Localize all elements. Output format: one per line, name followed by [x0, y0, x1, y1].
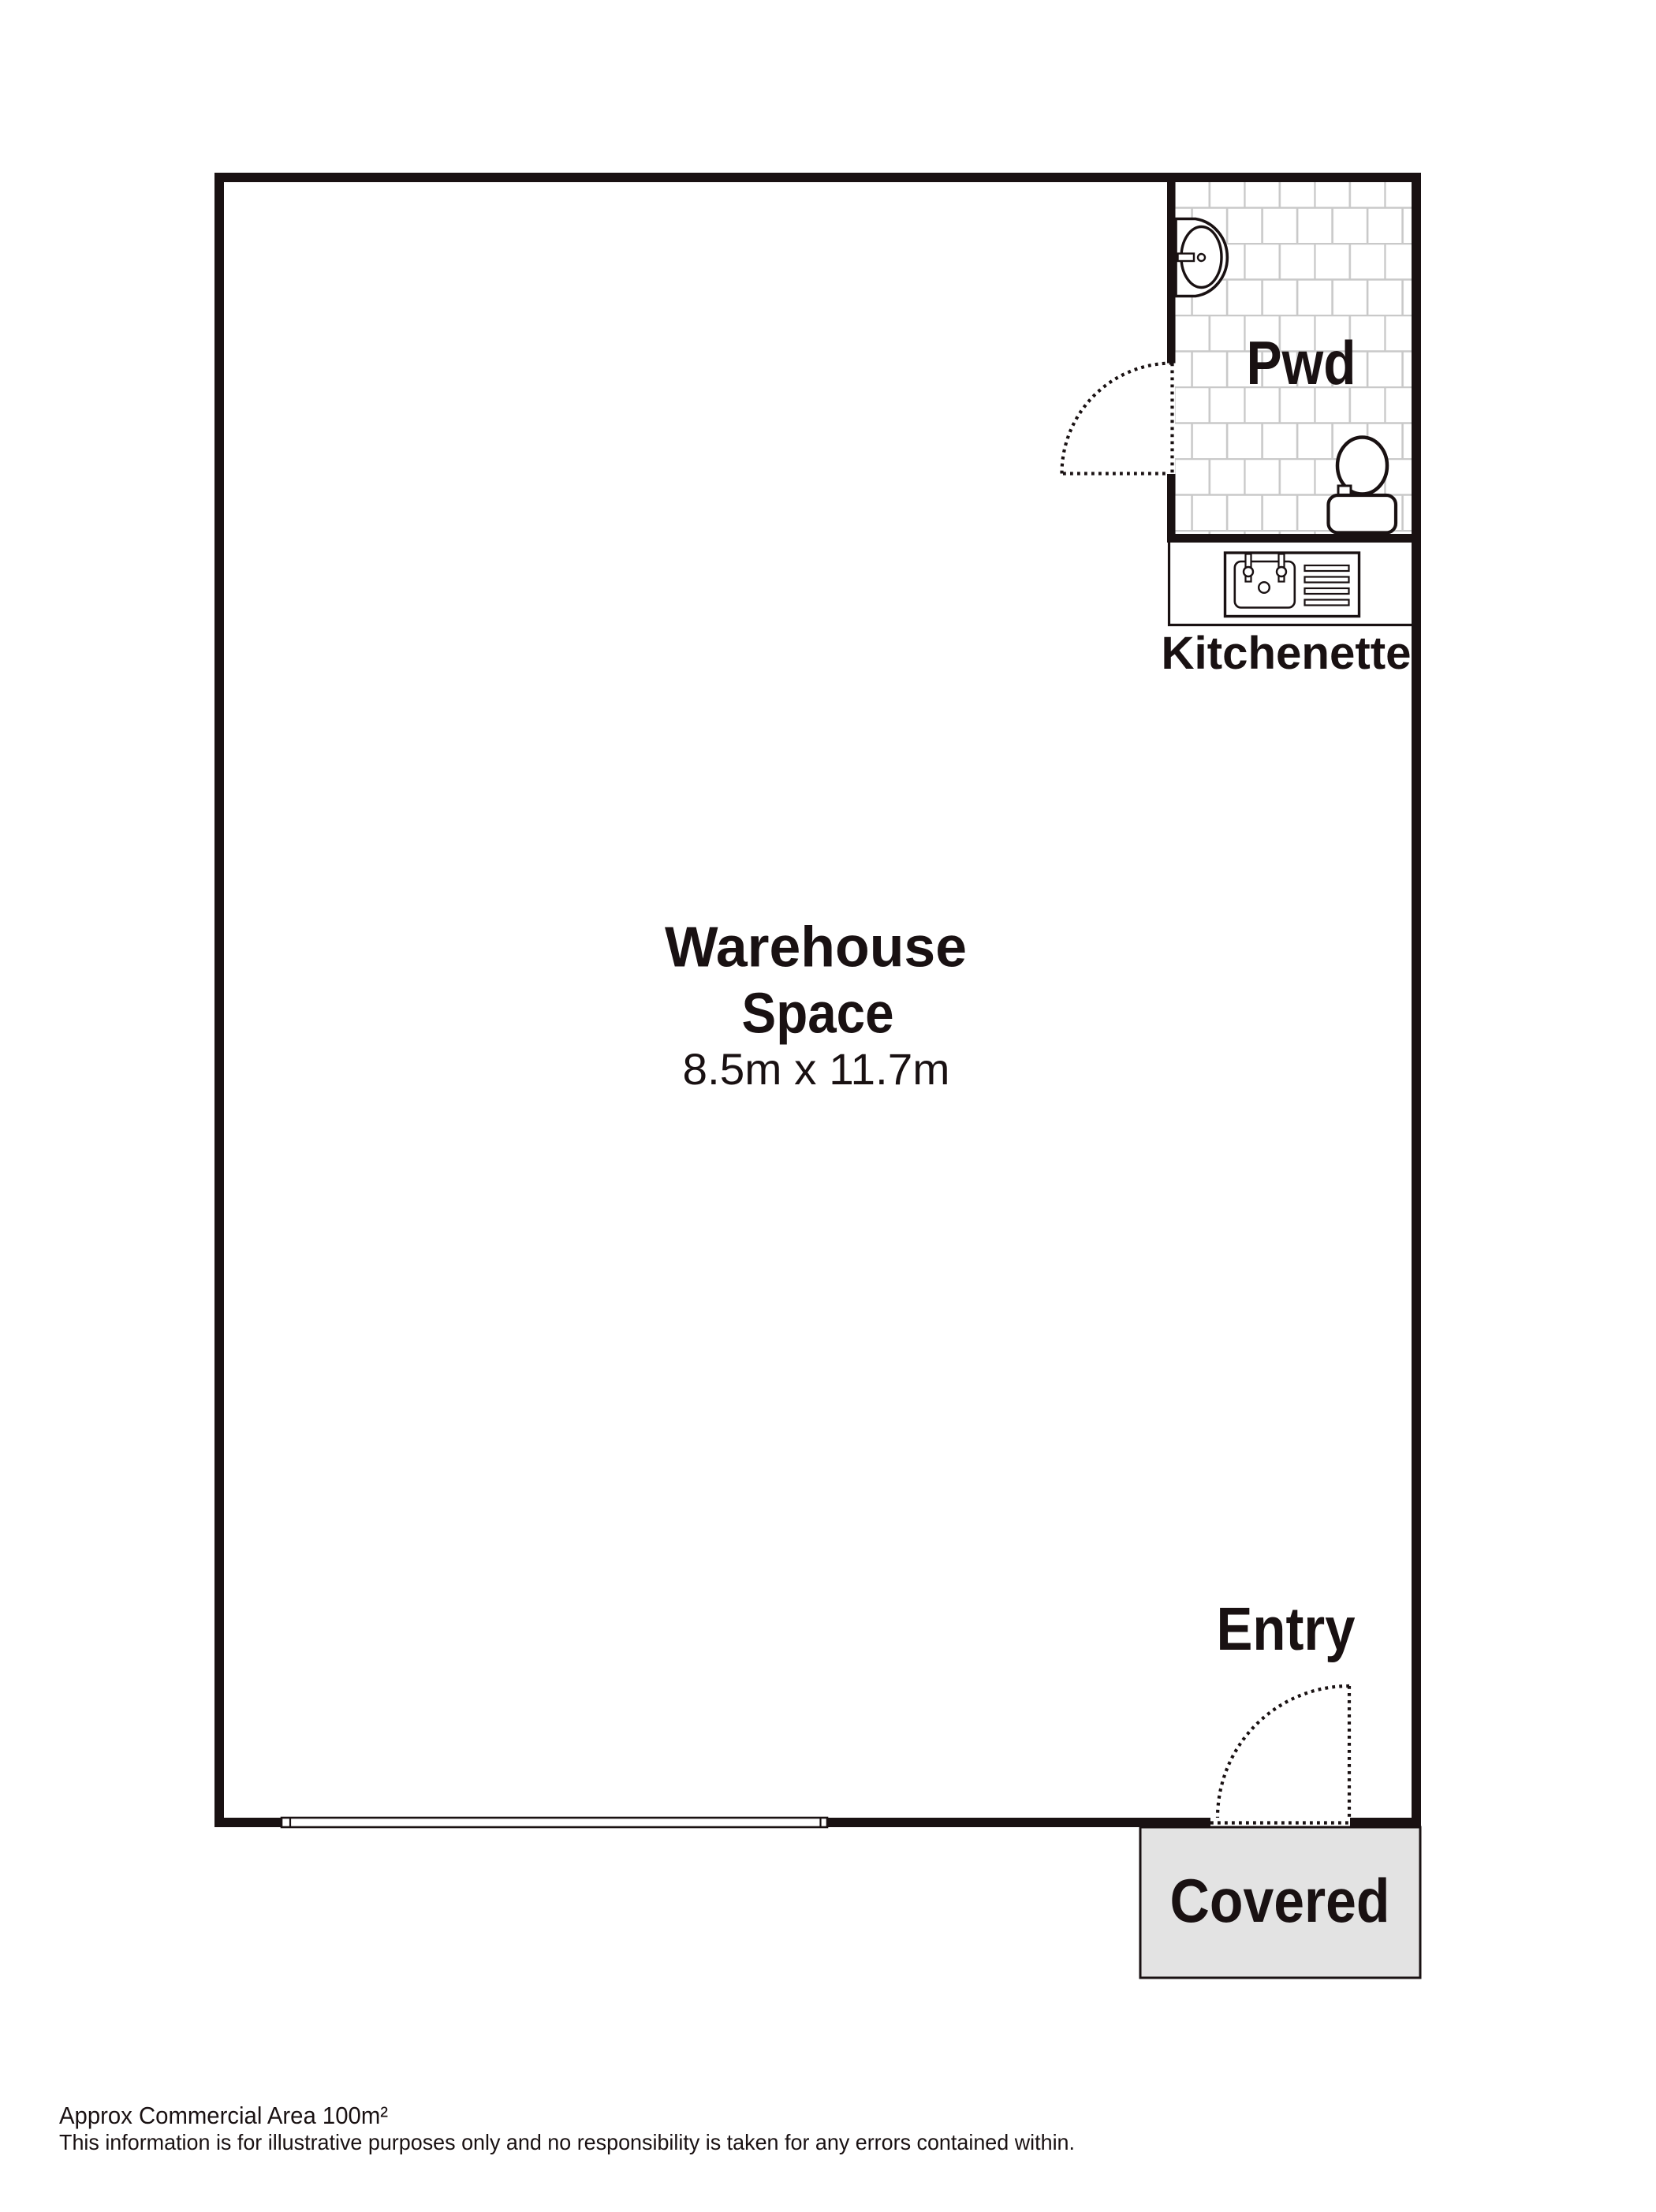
svg-text:Space: Space	[742, 983, 894, 1046]
svg-text:Warehouse: Warehouse	[665, 916, 967, 979]
svg-text:Entry: Entry	[1217, 1595, 1356, 1663]
svg-text:Approx Commercial Area 100m²: Approx Commercial Area 100m²	[59, 2102, 388, 2129]
svg-text:This information is for illust: This information is for illustrative pur…	[59, 2130, 1075, 2154]
svg-text:8.5m x 11.7m: 8.5m x 11.7m	[683, 1044, 950, 1094]
svg-text:Pwd: Pwd	[1247, 328, 1356, 397]
svg-text:Covered: Covered	[1170, 1866, 1390, 1935]
svg-text:Kitchenette: Kitchenette	[1162, 628, 1412, 679]
